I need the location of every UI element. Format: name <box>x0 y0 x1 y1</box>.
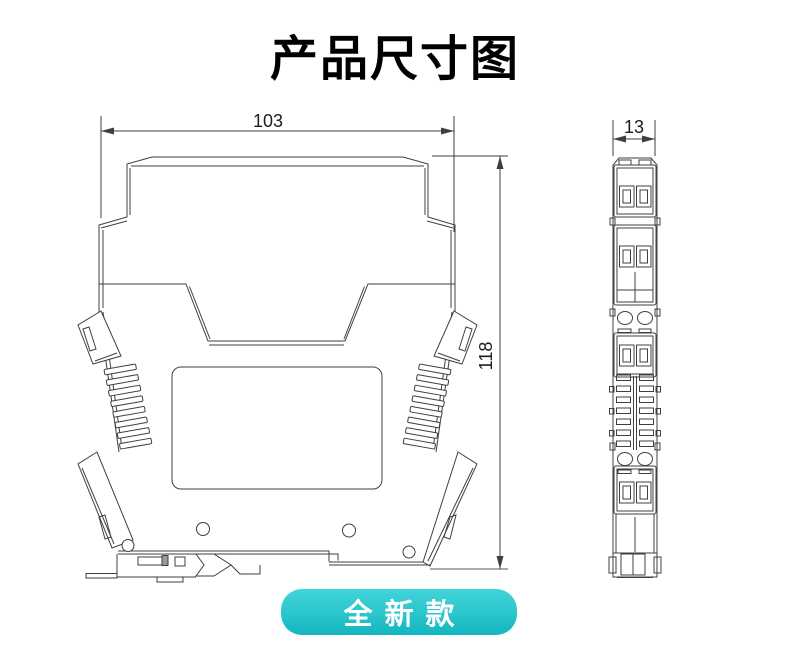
arrow-left-icon <box>101 128 114 135</box>
front-din-clip <box>609 553 661 578</box>
terminal-module <box>614 225 656 305</box>
new-model-badge: 全新款 <box>281 589 517 635</box>
front-view-drawing: 13 <box>609 117 661 578</box>
lower-section-lines <box>616 514 654 553</box>
badge-label: 全新款 <box>331 591 466 633</box>
arrow-right-icon <box>441 128 454 135</box>
hole-icon <box>122 540 134 552</box>
label-plate <box>172 367 382 489</box>
dimension-height-label: 118 <box>476 342 496 371</box>
latch-arrow-icon <box>196 554 231 576</box>
terminal-module <box>614 333 656 377</box>
lower-flap-right <box>423 452 477 566</box>
dimension-drawing: 103 118 <box>0 0 790 660</box>
hole-icon <box>343 524 356 537</box>
terminal-wing-right <box>403 311 477 452</box>
dimension-width: 103 <box>101 111 454 232</box>
dimension-depth-label: 13 <box>624 117 644 137</box>
housing-outline <box>99 157 455 313</box>
ventilation-slats <box>610 375 661 450</box>
terminal-wing-left <box>78 311 152 452</box>
lower-flap-left <box>78 452 133 548</box>
arrow-up-icon <box>497 156 504 169</box>
terminal-module <box>614 165 656 217</box>
product-dimension-page: 产品尺寸图 103 118 <box>0 0 790 660</box>
dimension-width-label: 103 <box>253 111 283 131</box>
trapezoid-notch <box>99 284 455 341</box>
dimension-depth: 13 <box>613 117 655 156</box>
hole-icon <box>403 546 415 558</box>
arrow-down-icon <box>497 556 504 569</box>
din-rail-clip <box>86 554 260 582</box>
hole-icon <box>197 523 210 536</box>
side-view-drawing: 103 118 <box>78 111 508 582</box>
